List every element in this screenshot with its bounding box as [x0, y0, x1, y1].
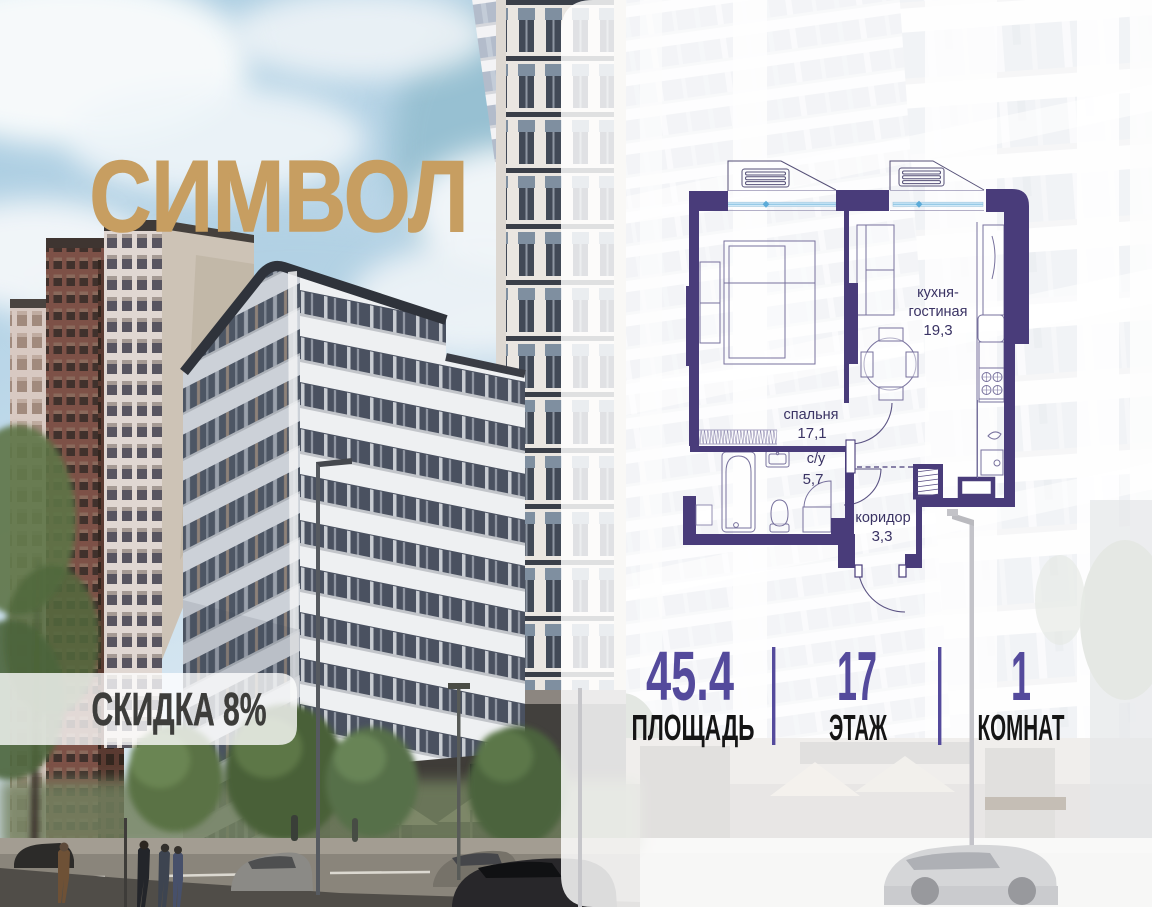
svg-text:СКИДКА 8%: СКИДКА 8%: [92, 683, 267, 735]
svg-text:коридор: коридор: [855, 510, 910, 526]
svg-text:ЭТАЖ: ЭТАЖ: [829, 707, 887, 748]
svg-text:ПЛОЩАДЬ: ПЛОЩАДЬ: [632, 707, 755, 748]
svg-text:КОМНАТ: КОМНАТ: [978, 707, 1065, 748]
svg-text:кухня-: кухня-: [917, 285, 959, 301]
svg-text:19,3: 19,3: [923, 322, 952, 339]
svg-text:3,3: 3,3: [872, 528, 893, 545]
svg-text:17,1: 17,1: [797, 425, 826, 442]
svg-text:1: 1: [1011, 637, 1031, 715]
svg-text:45.4: 45.4: [646, 637, 734, 715]
svg-text:5,7: 5,7: [803, 471, 824, 488]
svg-text:с/у: с/у: [807, 451, 826, 467]
svg-text:спальня: спальня: [783, 407, 838, 423]
svg-text:СИМВОЛ: СИМВОЛ: [90, 141, 469, 253]
svg-text:17: 17: [837, 637, 877, 715]
svg-text:гостиная: гостиная: [909, 304, 968, 320]
